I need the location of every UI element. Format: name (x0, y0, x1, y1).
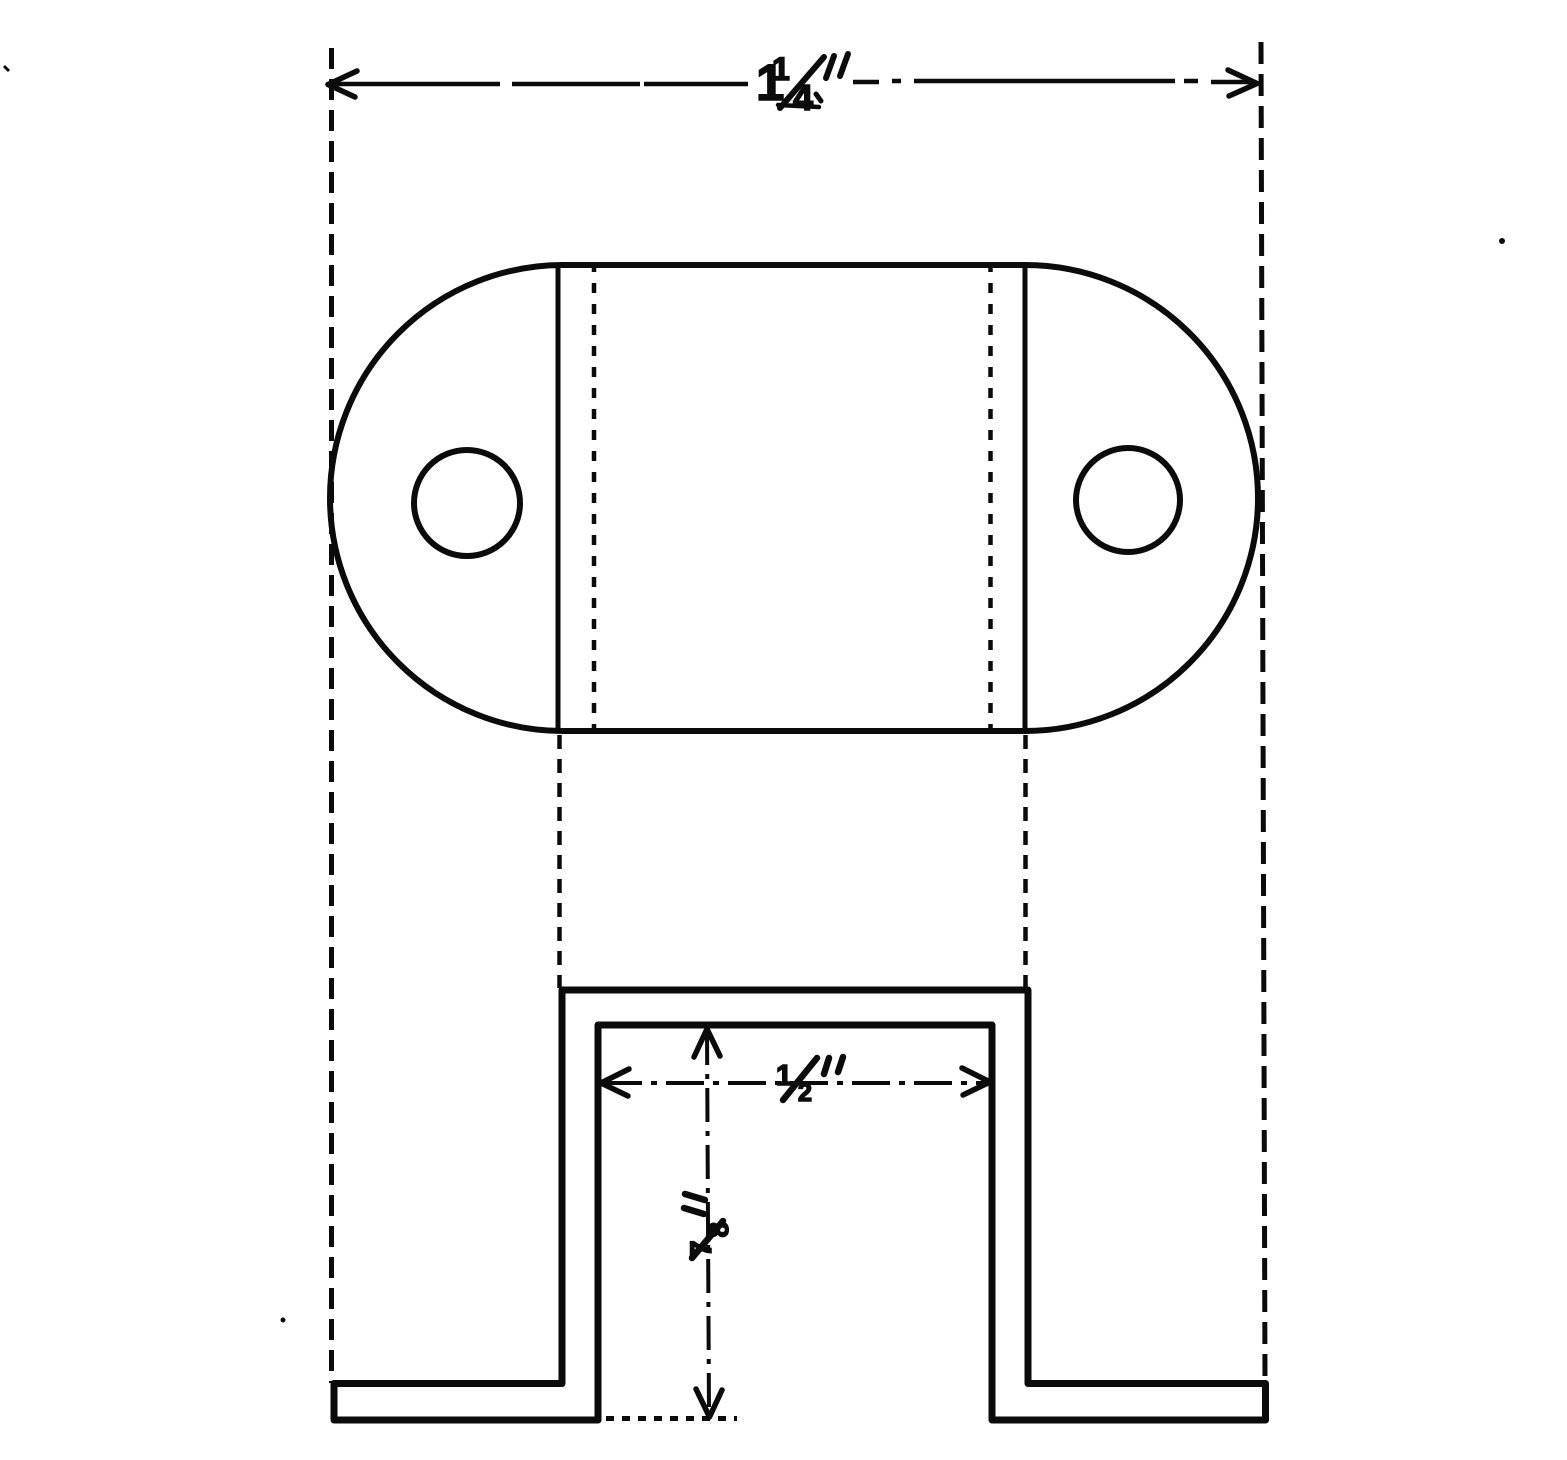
svg-text:1: 1 (772, 51, 790, 87)
